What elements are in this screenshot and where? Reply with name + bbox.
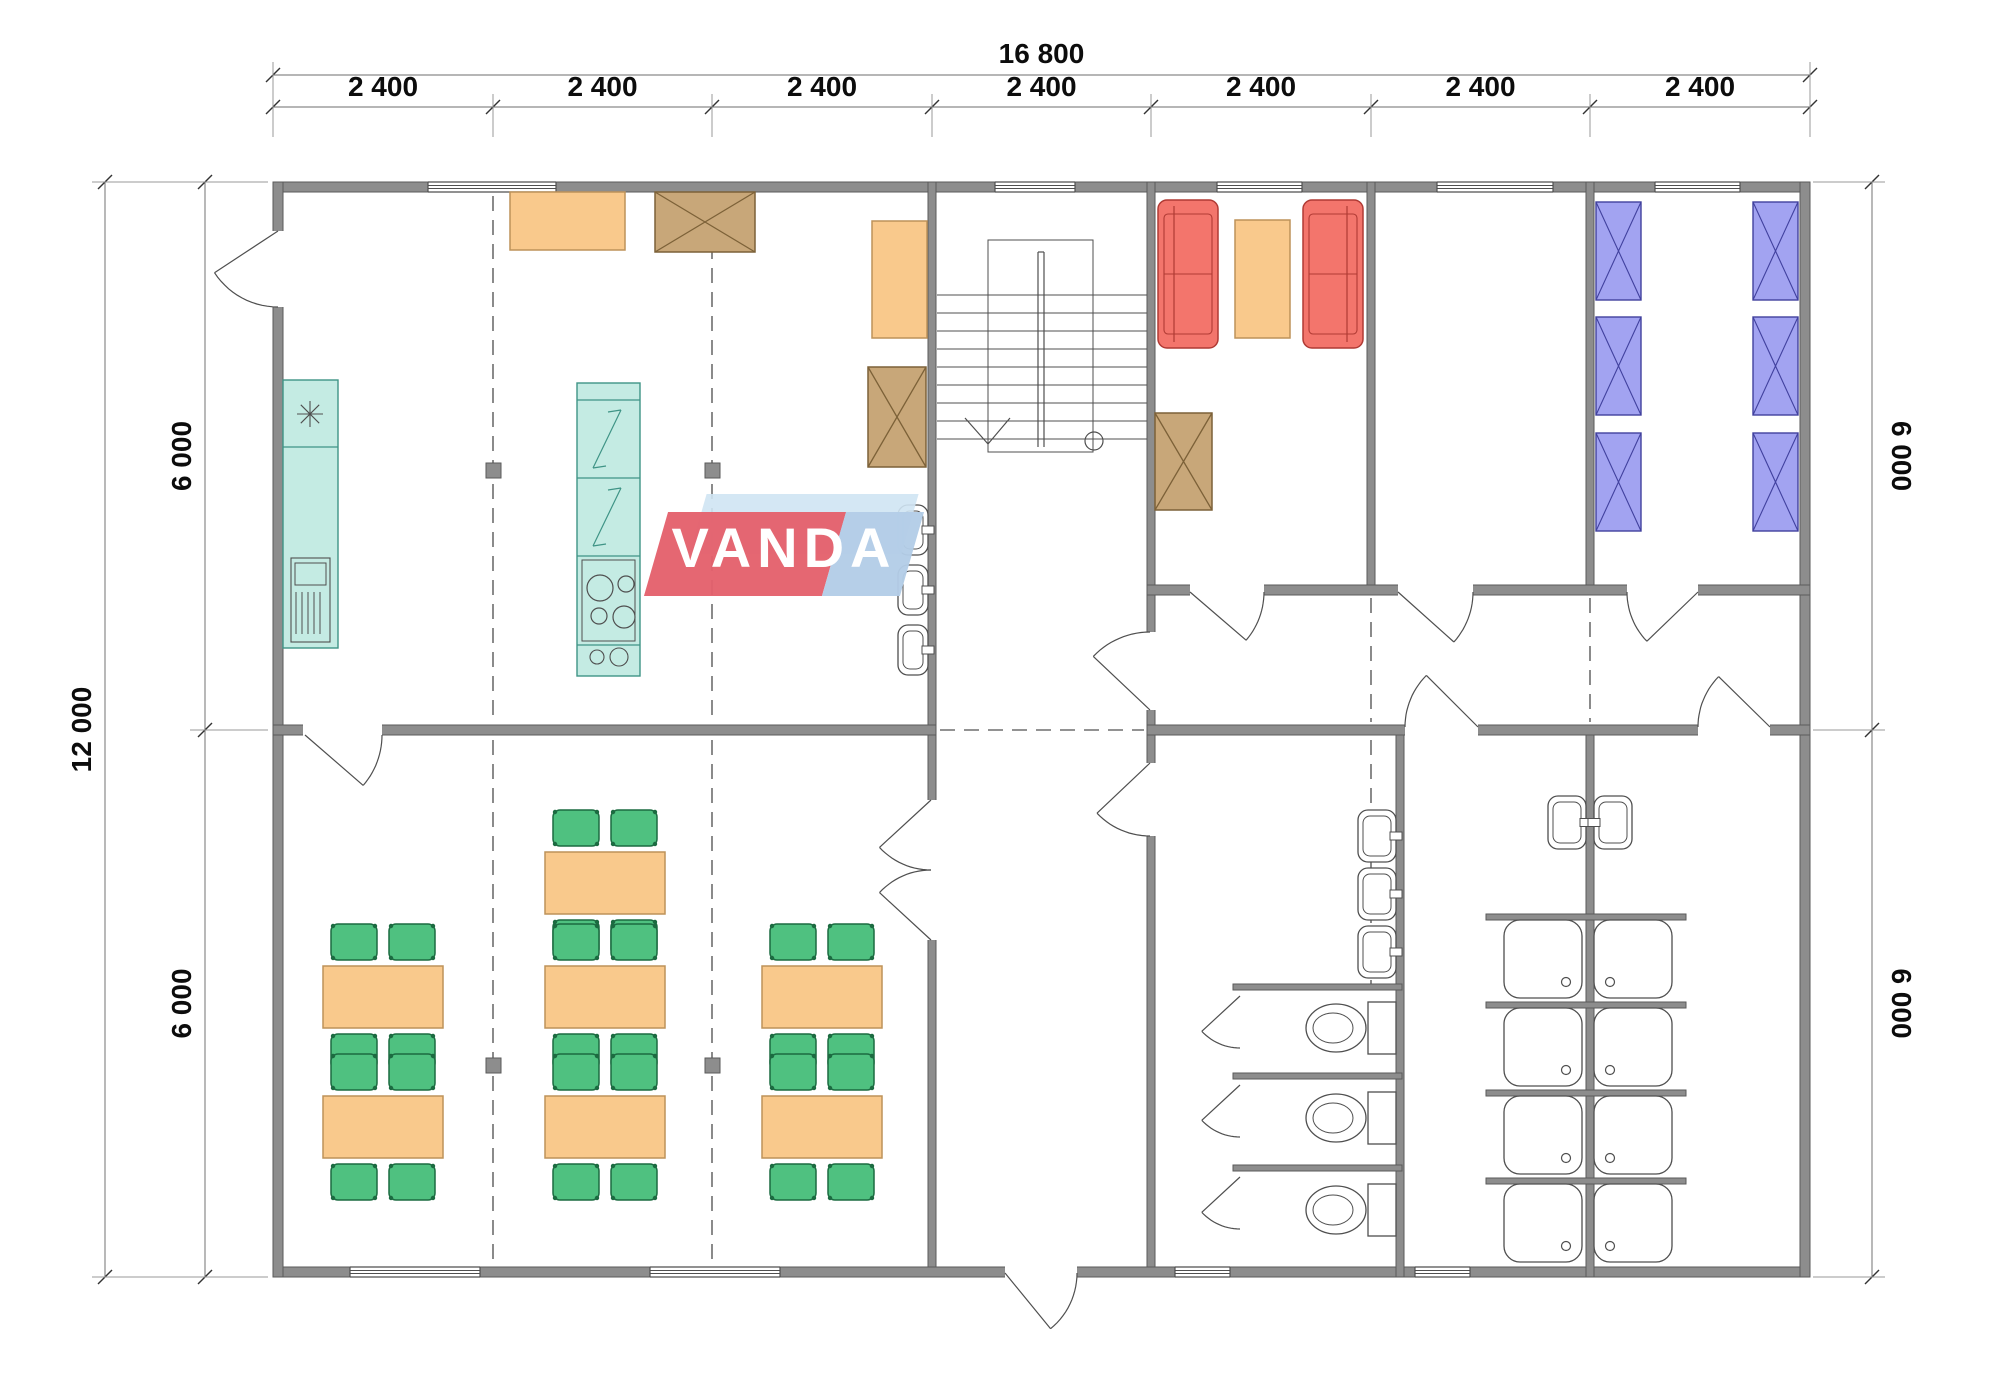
toilet [1306, 1002, 1396, 1054]
toilet-tank [1368, 1092, 1396, 1144]
wall [1486, 1002, 1686, 1008]
chair-corner [331, 1164, 335, 1168]
chair-corner [812, 1086, 816, 1090]
washbasin-tap [1390, 948, 1402, 956]
chair-corner [553, 810, 557, 814]
chair [389, 1164, 435, 1200]
staircase [937, 240, 1147, 452]
chair-corner [373, 1034, 377, 1038]
window [428, 182, 556, 192]
chair [770, 1054, 816, 1090]
chair-corner [611, 1196, 615, 1200]
chair-corner [653, 920, 657, 924]
washbasin-tap [922, 646, 934, 654]
window [995, 182, 1075, 192]
chair [611, 1054, 657, 1090]
chair-corner [553, 924, 557, 928]
chair [553, 1054, 599, 1090]
chair-corner [331, 1034, 335, 1038]
dining-table [545, 966, 665, 1028]
chair-corner [595, 842, 599, 846]
chair [553, 810, 599, 846]
washbasin-tap [922, 586, 934, 594]
chair [828, 924, 874, 960]
door-opening [1144, 632, 1157, 710]
chair-corner [373, 924, 377, 928]
chair-corner [595, 1164, 599, 1168]
shower-tray [1504, 1008, 1582, 1086]
door-arc [1202, 1177, 1240, 1229]
chair-corner [611, 842, 615, 846]
chair-corner [812, 1196, 816, 1200]
chair-corner [595, 1054, 599, 1058]
door-opening [270, 231, 284, 307]
dimension-label: 2 400 [1445, 71, 1515, 102]
dimension-label: 2 400 [787, 71, 857, 102]
chair-corner [828, 956, 832, 960]
chair-corner [431, 1164, 435, 1168]
door-arc [1202, 996, 1240, 1048]
toilet-tank [1368, 1184, 1396, 1236]
chair-corner [389, 924, 393, 928]
door-opening [1144, 763, 1157, 836]
column-marker [705, 463, 720, 478]
wall [1233, 984, 1402, 990]
chair-corner [770, 1196, 774, 1200]
chair-corner [828, 1034, 832, 1038]
chair-corner [770, 1086, 774, 1090]
dimension-label: 6 000 [166, 421, 197, 491]
dimension-label: 2 400 [1226, 71, 1296, 102]
chair [553, 924, 599, 960]
chair [611, 810, 657, 846]
chair-corner [595, 1086, 599, 1090]
chair-corner [870, 1054, 874, 1058]
dimension-label: 2 400 [348, 71, 418, 102]
chair-corner [653, 842, 657, 846]
window [1415, 1267, 1470, 1277]
washbasin-tap [1588, 819, 1600, 827]
chair [611, 1164, 657, 1200]
wall [1586, 725, 1594, 1277]
dimension-label: 2 400 [567, 71, 637, 102]
shower-tray [1594, 1008, 1672, 1086]
chair-corner [553, 1034, 557, 1038]
dimension-label: 2 400 [1006, 71, 1076, 102]
chair-corner [870, 1196, 874, 1200]
chair-corner [770, 1034, 774, 1038]
stair-circle [1085, 432, 1103, 450]
chair-corner [373, 1054, 377, 1058]
kitchen-counter [283, 380, 338, 648]
dining-table [762, 966, 882, 1028]
chair [770, 1164, 816, 1200]
chair-corner [770, 924, 774, 928]
chair [770, 924, 816, 960]
wall [1233, 1073, 1402, 1079]
chair-corner [870, 924, 874, 928]
chair-corner [653, 1196, 657, 1200]
chair-corner [828, 1164, 832, 1168]
chair-corner [870, 1034, 874, 1038]
table-box [510, 192, 625, 250]
chair-corner [653, 1054, 657, 1058]
logo-text: VANDA [658, 520, 910, 576]
chair-corner [389, 1086, 393, 1090]
toilet-tank [1368, 1002, 1396, 1054]
shower-tray [1504, 1184, 1582, 1262]
floor-plan-page: 16 8002 4002 4002 4002 4002 4002 4002 40… [0, 0, 2000, 1380]
washbasin-tap [1390, 890, 1402, 898]
chair-corner [870, 1086, 874, 1090]
toilet [1306, 1092, 1396, 1144]
door-opening [1005, 1265, 1077, 1279]
chair-corner [812, 956, 816, 960]
chair-corner [431, 1196, 435, 1200]
dimension-label: 12 000 [66, 687, 97, 773]
chair-corner [331, 1086, 335, 1090]
chair-corner [389, 1164, 393, 1168]
chair-corner [611, 1086, 615, 1090]
chair-corner [653, 810, 657, 814]
chair [828, 1054, 874, 1090]
wall [1396, 725, 1404, 1277]
window [1437, 182, 1553, 192]
washbasin-tap [1390, 832, 1402, 840]
wall [1486, 914, 1686, 920]
toilet-bowl [1306, 1094, 1366, 1142]
chair-corner [553, 920, 557, 924]
door-opening [1398, 583, 1473, 597]
dining-table [545, 1096, 665, 1158]
chair-corner [431, 1086, 435, 1090]
table-box [872, 221, 927, 338]
table-box [1235, 220, 1290, 338]
chair-corner [553, 1054, 557, 1058]
toilet-bowl [1306, 1004, 1366, 1052]
stair-outline [988, 240, 1093, 452]
shower-tray [1594, 920, 1672, 998]
chair-corner [812, 924, 816, 928]
door-arc [1190, 592, 1264, 640]
chair-corner [331, 956, 335, 960]
column-marker [486, 463, 501, 478]
chair-corner [331, 924, 335, 928]
door-arc [1627, 592, 1698, 641]
chair-corner [331, 1196, 335, 1200]
chair-corner [431, 1034, 435, 1038]
dining-table [323, 966, 443, 1028]
shower-tray [1504, 920, 1582, 998]
chair-corner [611, 1034, 615, 1038]
door-arc [1097, 763, 1150, 836]
chair-corner [389, 956, 393, 960]
door-arc [1093, 632, 1150, 710]
dining-table [762, 1096, 882, 1158]
chair [828, 1164, 874, 1200]
toilet [1306, 1184, 1396, 1236]
chair-corner [653, 1034, 657, 1038]
chair-corner [431, 924, 435, 928]
door-arc [1698, 677, 1770, 727]
wall [1367, 182, 1375, 595]
chair-corner [553, 1086, 557, 1090]
dimension-label: 6 000 [166, 968, 197, 1038]
wall [1586, 182, 1594, 595]
chair-corner [595, 1196, 599, 1200]
chair-corner [553, 956, 557, 960]
chair-corner [870, 956, 874, 960]
door-arc [880, 870, 932, 940]
dimension-label: 2 400 [1665, 71, 1735, 102]
door-opening [1698, 723, 1770, 737]
chair-corner [389, 1034, 393, 1038]
door-opening [303, 723, 382, 737]
chair-corner [770, 956, 774, 960]
fridge-stove-unit [577, 383, 640, 676]
window [650, 1267, 780, 1277]
washbasin-tap [922, 526, 934, 534]
chair-corner [828, 924, 832, 928]
chair-corner [389, 1196, 393, 1200]
chair-corner [373, 1196, 377, 1200]
chair-corner [331, 1054, 335, 1058]
dining-table [323, 1096, 443, 1158]
chair-corner [770, 1054, 774, 1058]
chair-corner [611, 1164, 615, 1168]
chair-corner [595, 1034, 599, 1038]
chair [331, 1054, 377, 1090]
column-marker [486, 1058, 501, 1073]
door-arc [1405, 675, 1478, 727]
wall [1486, 1178, 1686, 1184]
dining-table [545, 852, 665, 914]
chair-corner [595, 956, 599, 960]
door-arc [1398, 592, 1473, 642]
chair-corner [553, 842, 557, 846]
shower-tray [1594, 1096, 1672, 1174]
chair-corner [812, 1054, 816, 1058]
door-arc [305, 735, 382, 785]
chair-corner [653, 1086, 657, 1090]
shower-tray [1594, 1184, 1672, 1262]
column-marker [705, 1058, 720, 1073]
window [1217, 182, 1302, 192]
shower-tray [1504, 1096, 1582, 1174]
chair [611, 924, 657, 960]
chair-corner [611, 924, 615, 928]
chair-corner [770, 1164, 774, 1168]
toilet-bowl [1306, 1186, 1366, 1234]
door-opening [1190, 583, 1264, 597]
chair-corner [828, 1196, 832, 1200]
chair [331, 924, 377, 960]
chair [553, 1164, 599, 1200]
chair-corner [431, 956, 435, 960]
chair-corner [373, 1086, 377, 1090]
chair-corner [553, 1164, 557, 1168]
chair-corner [611, 920, 615, 924]
window [350, 1267, 480, 1277]
window [1655, 182, 1740, 192]
door-arc [880, 800, 932, 870]
chair [389, 1054, 435, 1090]
chair-corner [373, 956, 377, 960]
chair-corner [870, 1164, 874, 1168]
chair-corner [812, 1034, 816, 1038]
wall [1486, 1090, 1686, 1096]
chair-corner [812, 1164, 816, 1168]
dimension-label: 6 000 [1886, 968, 1917, 1038]
floor-plan-canvas: 16 8002 4002 4002 4002 4002 4002 4002 40… [0, 0, 2000, 1380]
chair-corner [653, 924, 657, 928]
door-arc [1005, 1273, 1077, 1329]
door-arc [1202, 1085, 1240, 1137]
door-opening [1405, 723, 1478, 737]
door-arc [215, 231, 279, 307]
unit-body [577, 383, 640, 676]
chair-corner [595, 920, 599, 924]
chair-corner [389, 1054, 393, 1058]
chair-corner [611, 810, 615, 814]
chair-corner [595, 810, 599, 814]
chair-corner [431, 1054, 435, 1058]
wall [1233, 1165, 1402, 1171]
chair-corner [653, 956, 657, 960]
chair-corner [653, 1164, 657, 1168]
dimension-label: 6 000 [1886, 421, 1917, 491]
window [1175, 1267, 1230, 1277]
chair-corner [611, 1054, 615, 1058]
watermark-logo: VANDA [652, 494, 914, 600]
chair [331, 1164, 377, 1200]
chair-corner [553, 1196, 557, 1200]
dimension-label: 16 800 [999, 38, 1085, 69]
chair-corner [373, 1164, 377, 1168]
chair [389, 924, 435, 960]
chair-corner [595, 924, 599, 928]
chair-corner [828, 1086, 832, 1090]
door-opening [1627, 583, 1698, 597]
chair-corner [611, 956, 615, 960]
chair-corner [828, 1054, 832, 1058]
